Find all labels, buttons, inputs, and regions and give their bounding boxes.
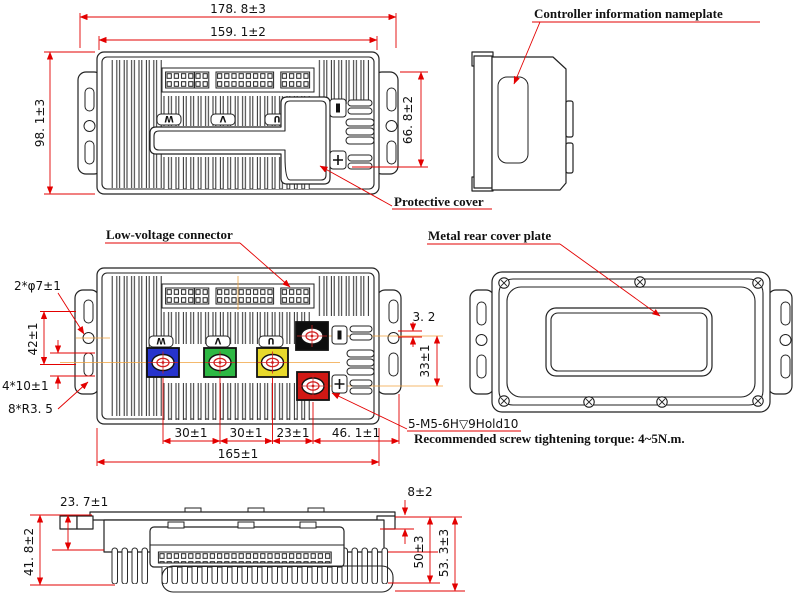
rear-view: Metal rear cover plate (427, 228, 792, 412)
protective-cover-label: Protective cover (394, 194, 484, 209)
dim-v-to-u: 30±1 (230, 426, 263, 440)
dim-left-height: 41. 8±2 (22, 528, 36, 576)
front-view-ribs-middle-top (163, 312, 311, 344)
dim-total-height: 53. 3±3 (437, 529, 451, 577)
bottom-view-flange (90, 512, 395, 520)
dim-side-height: 66. 8±2 (401, 96, 415, 144)
heatsink-fins-center (160, 567, 340, 584)
minus-mark (336, 104, 340, 113)
top-view-terminal-w-label: W (164, 113, 174, 123)
technical-drawing: W V U 178. 8±3 159. 1±2 98. 1±3 (0, 0, 800, 600)
bottom-view: 23. 7±1 41. 8±2 8±2 50±3 53. 3±3 (22, 485, 465, 592)
dim-overall-width: 178. 8±3 (210, 2, 266, 16)
top-view-terminal-u-label: U (273, 113, 280, 123)
front-view-ribs-right (318, 276, 370, 316)
dim-mount-span: 165±1 (218, 447, 259, 461)
dim-slot-spacing: 42±1 (26, 323, 40, 356)
nameplate-label: Controller information nameplate (534, 6, 723, 21)
dim-flange-to-base: 23. 7±1 (60, 495, 108, 509)
front-terminal-v-label: V (214, 335, 221, 345)
torque-note: Recommended screw tightening torque: 4~5… (414, 431, 685, 446)
dim-u-to-b: 23±1 (277, 426, 310, 440)
top-view-terminal-v-label: V (219, 113, 226, 123)
heatsink-fins-left (110, 547, 150, 584)
dim-mount-holes: 2*φ7±1 (14, 279, 61, 293)
rear-recess (546, 308, 712, 376)
side-view: Controller information nameplate (472, 6, 760, 191)
dim-w-to-v: 30±1 (175, 426, 208, 440)
top-view-power-bars (346, 100, 374, 169)
dim-slot-size: 4*10±1 (2, 379, 49, 393)
dim-body-width: 159. 1±2 (210, 25, 266, 39)
front-view-power-bars (347, 326, 374, 394)
dim-overall-height: 98. 1±3 (33, 99, 47, 147)
top-view: W V U 178. 8±3 159. 1±2 98. 1±3 (33, 2, 492, 209)
front-terminal-w-label: W (156, 335, 166, 345)
top-view-ribs-left (111, 60, 163, 188)
low-voltage-label: Low-voltage connector (106, 227, 233, 242)
screw-spec-note: 5-M5-6H▽9Hold10 (408, 417, 518, 431)
dim-corner-radius: 8*R3. 5 (8, 402, 53, 416)
side-view-flange (474, 56, 492, 188)
dim-terminal-spacing: 33±1 (418, 345, 432, 378)
dim-step: 3. 2 (413, 310, 436, 324)
top-view-right-ear-holes (386, 88, 397, 164)
front-terminal-u-label: U (267, 335, 274, 345)
rear-cover-label: Metal rear cover plate (428, 228, 551, 243)
front-view-ribs-middle-bottom (163, 383, 311, 420)
nameplate (498, 77, 528, 163)
dim-b-to-edge: 46. 1±1 (332, 426, 380, 440)
top-view-left-ear-holes (84, 88, 95, 164)
dim-fin-height: 50±3 (412, 536, 426, 569)
dim-flange-thickness: 8±2 (407, 485, 432, 499)
